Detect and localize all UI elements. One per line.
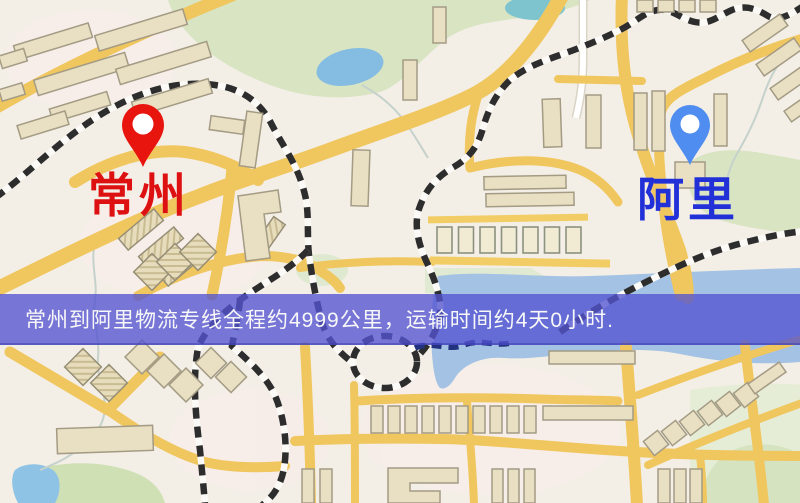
destination-city-label: 阿里	[637, 176, 739, 223]
route-info-banner: 常州到阿里物流专线全程约4999公里，运输时间约4天0小时.	[0, 294, 800, 345]
route-info-text: 常州到阿里物流专线全程约4999公里，运输时间约4天0小时.	[25, 304, 614, 334]
map-artwork	[0, 0, 800, 503]
origin-city-label: 常州	[88, 172, 190, 219]
minor-roads	[576, 0, 583, 118]
map-canvas: 常州 阿里 常州到阿里物流专线全程约4999公里，运输时间约4天0小时.	[0, 0, 800, 503]
